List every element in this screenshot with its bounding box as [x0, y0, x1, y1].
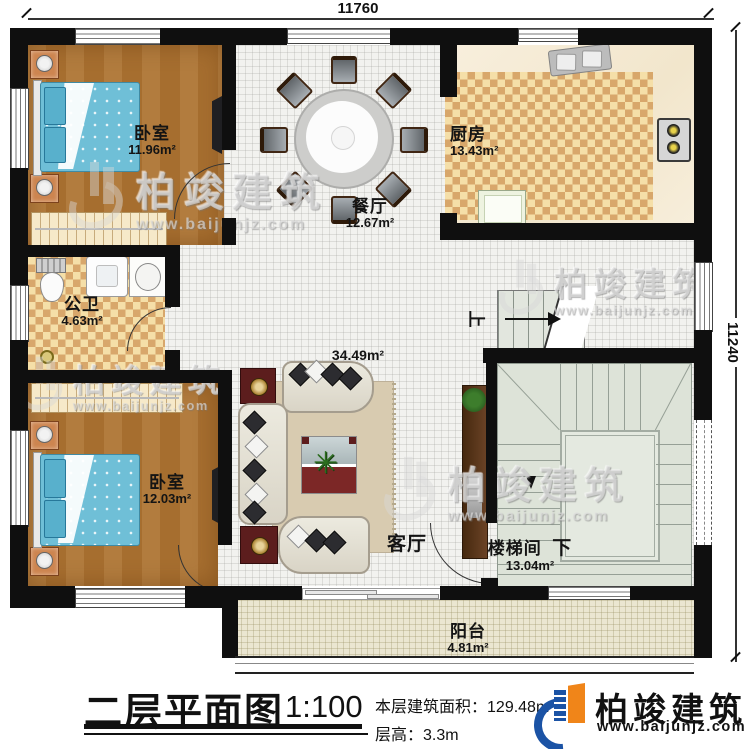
- room-label-balcony: 阳台4.81m²: [408, 622, 528, 656]
- washing-machine-door-icon: [96, 265, 118, 287]
- pillow: [44, 87, 66, 125]
- balcony-railing: [235, 656, 694, 674]
- dining-chair: [400, 127, 428, 153]
- plan-scale: 1:100: [285, 689, 363, 725]
- room-label-kitchen: 厨房13.43m²: [450, 125, 570, 159]
- window: [694, 262, 713, 332]
- pillow: [44, 459, 66, 498]
- pillow: [44, 127, 66, 163]
- wardrobe: [31, 383, 183, 413]
- window: [75, 588, 187, 608]
- window: [287, 28, 392, 44]
- plant-icon: [462, 388, 486, 412]
- room-label-bath: 公卫4.63m²: [22, 295, 142, 329]
- nightstand: [30, 174, 59, 203]
- brand-logo-icon: [537, 681, 593, 743]
- plant-icon: ✳: [313, 446, 338, 481]
- lamp-icon: [36, 55, 53, 72]
- corner-table: [240, 368, 276, 404]
- title-underline-thin: [84, 733, 368, 735]
- window: [518, 28, 580, 42]
- window-dashed: [696, 420, 712, 545]
- stair-up-arrow-icon: [548, 312, 561, 326]
- stair-up-label: 上: [466, 310, 485, 330]
- window: [548, 586, 632, 600]
- stair-down-label: 下: [552, 538, 572, 559]
- coffee-table: ✳: [301, 436, 357, 494]
- lamp-icon: [36, 426, 53, 443]
- nightstand: [30, 50, 59, 79]
- bath-sink: [135, 263, 161, 291]
- floor-drain-icon: [40, 350, 54, 364]
- dining-chair: [331, 56, 357, 84]
- stove: [657, 118, 691, 162]
- window: [10, 88, 29, 170]
- toilet-tank: [36, 258, 66, 273]
- wardrobe: [31, 212, 167, 246]
- sliding-door: [302, 588, 442, 600]
- lamp-icon: [36, 179, 53, 196]
- pillow: [44, 500, 66, 538]
- room-label-bedroom1: 卧室11.96m²: [92, 124, 212, 158]
- room-label-dining: 餐厅12.67m²: [310, 197, 430, 231]
- stair-down-arrow-icon: [526, 476, 536, 489]
- tv: [212, 96, 222, 154]
- room-label-bedroom2: 卧室12.03m²: [107, 473, 227, 507]
- dining-chair: [260, 127, 288, 153]
- floor-plan-canvas: 上: [0, 0, 750, 749]
- room-label-living-area: 34.49m²: [298, 348, 418, 364]
- corner-table: [240, 526, 278, 564]
- brand-website: www.baijunjz.com: [597, 719, 746, 735]
- floor-area-line: 本层建筑面积：129.48m²: [375, 693, 555, 717]
- rug-fringe: [392, 383, 396, 549]
- window: [10, 430, 29, 527]
- window: [75, 28, 162, 45]
- floor-height-line: 层高：3.3m: [375, 721, 459, 745]
- dimension-right: 11240: [724, 318, 741, 367]
- nightstand: [30, 547, 59, 576]
- refrigerator: [478, 190, 526, 226]
- nightstand: [30, 421, 59, 450]
- vase: [467, 474, 482, 518]
- dining-table-center: [331, 126, 355, 150]
- room-label-stairwell: 楼梯间 下 13.04m²: [455, 538, 605, 574]
- dimension-top: 11760: [318, 0, 398, 17]
- lamp-icon: [36, 552, 53, 569]
- stair-up-arrow-line: [505, 318, 549, 320]
- room-label-living: 客厅: [347, 534, 467, 555]
